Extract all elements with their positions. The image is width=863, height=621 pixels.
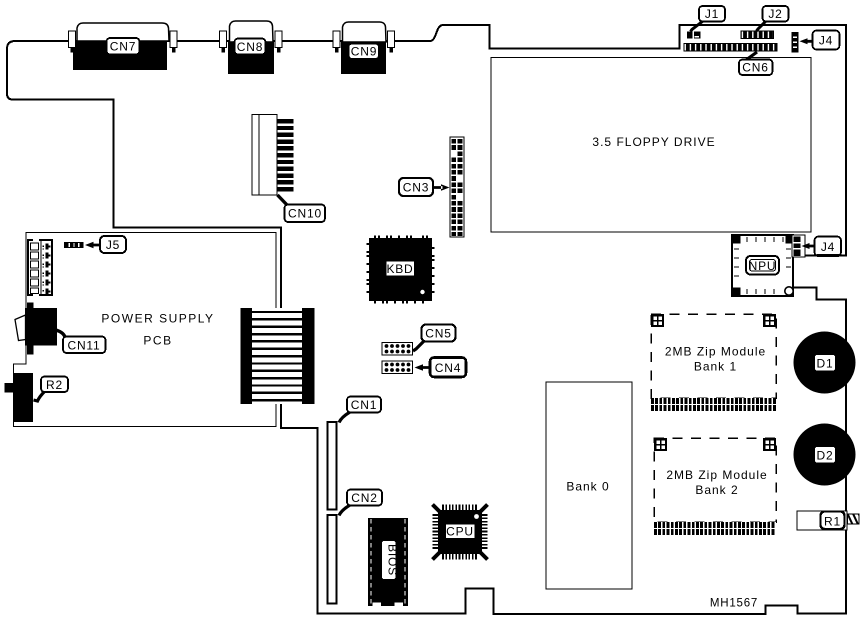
svg-text:CPU: CPU <box>446 525 474 539</box>
svg-text:CN4: CN4 <box>435 361 461 375</box>
svg-text:CN11: CN11 <box>68 339 101 353</box>
svg-text:R2: R2 <box>46 378 63 392</box>
svg-text:BIOS: BIOS <box>386 544 400 576</box>
svg-text:CN8: CN8 <box>237 40 263 54</box>
svg-text:J1: J1 <box>705 7 719 21</box>
svg-text:CN3: CN3 <box>403 181 429 195</box>
svg-text:Bank 0: Bank 0 <box>566 480 609 494</box>
svg-text:PCB: PCB <box>143 334 172 348</box>
svg-text:Bank 2: Bank 2 <box>695 483 738 497</box>
svg-text:MH1567: MH1567 <box>710 598 758 610</box>
svg-text:J2: J2 <box>768 7 782 21</box>
svg-text:2MB Zip Module: 2MB Zip Module <box>666 468 767 482</box>
svg-text:POWER SUPPLY: POWER SUPPLY <box>101 312 214 326</box>
svg-text:KBD: KBD <box>386 262 413 276</box>
svg-text:D2: D2 <box>817 449 834 463</box>
svg-text:NPU: NPU <box>749 259 777 273</box>
svg-text:3.5 FLOPPY DRIVE: 3.5 FLOPPY DRIVE <box>592 135 715 149</box>
svg-text:CN9: CN9 <box>351 45 377 59</box>
svg-text:CN1: CN1 <box>351 398 377 412</box>
svg-text:D1: D1 <box>817 357 834 371</box>
svg-text:CN5: CN5 <box>425 327 451 341</box>
svg-text:CN2: CN2 <box>351 491 377 505</box>
svg-text:2MB Zip Module: 2MB Zip Module <box>665 345 766 359</box>
svg-text:CN7: CN7 <box>110 40 136 54</box>
svg-text:J4: J4 <box>821 240 835 254</box>
svg-text:CN6: CN6 <box>742 61 768 75</box>
svg-text:CN10: CN10 <box>288 207 322 221</box>
svg-text:R1: R1 <box>824 515 841 529</box>
svg-text:Bank 1: Bank 1 <box>694 360 737 374</box>
svg-text:J4: J4 <box>819 34 833 48</box>
svg-text:J5: J5 <box>106 238 120 252</box>
